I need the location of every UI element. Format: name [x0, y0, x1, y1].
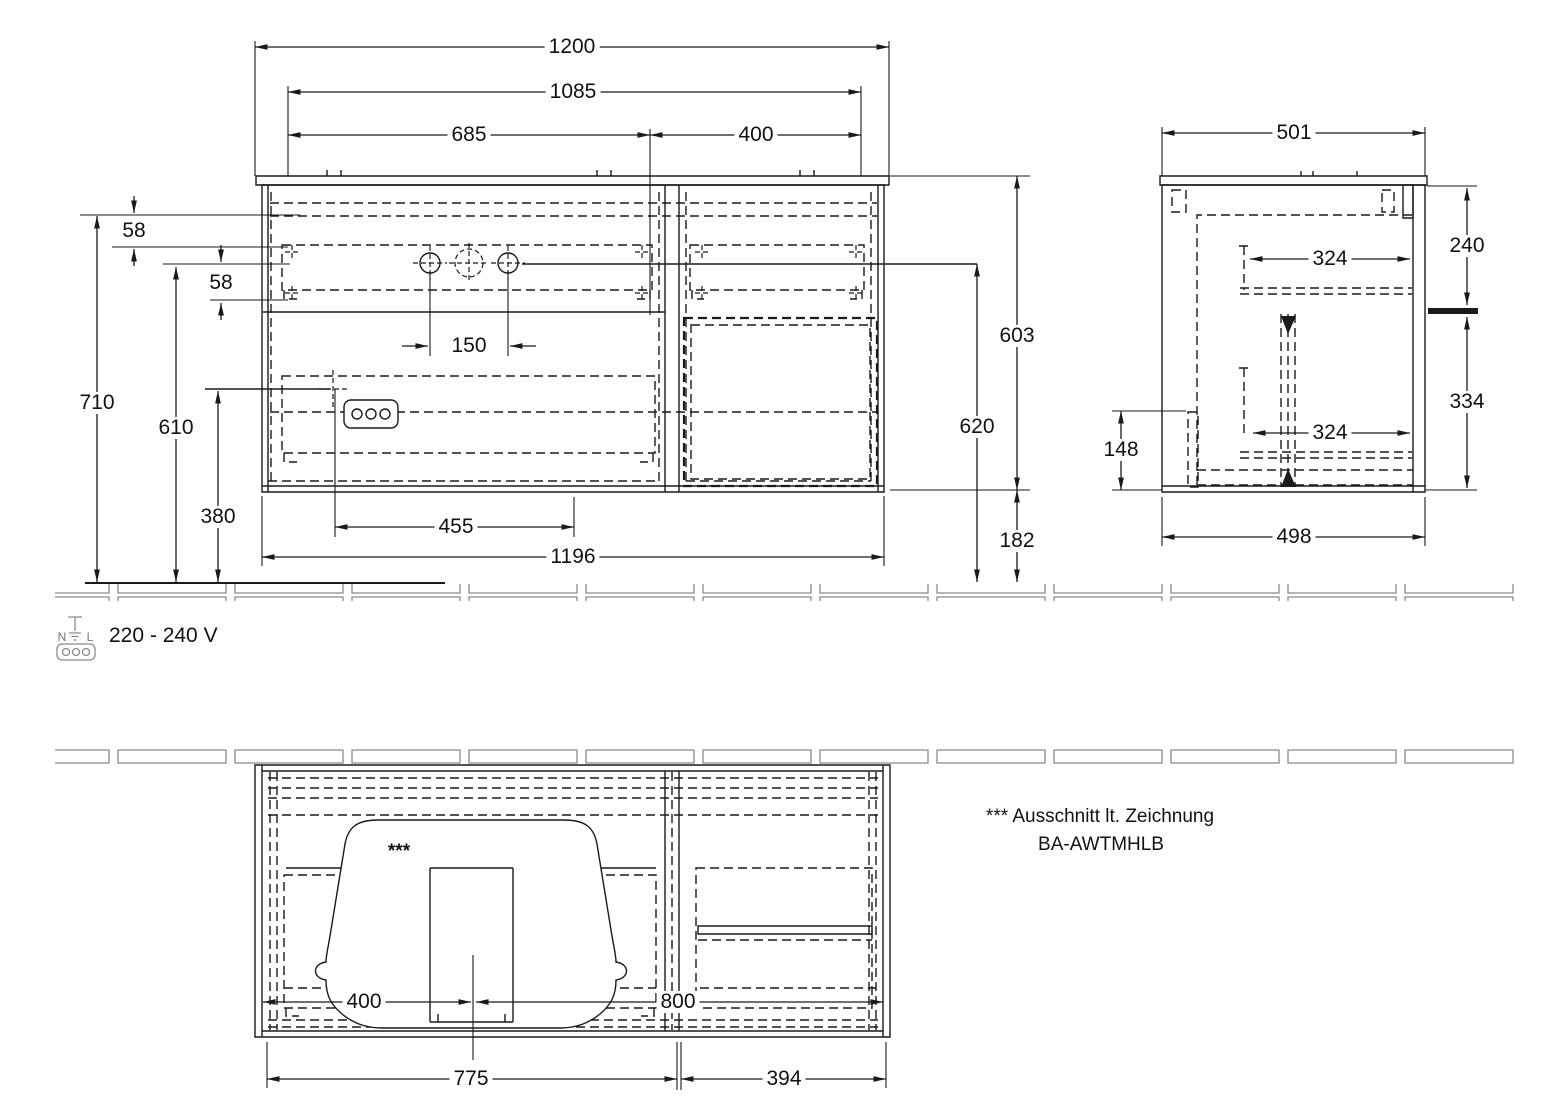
cutout-note-line2: BA-AWTMHLB: [1038, 834, 1164, 856]
technical-drawing-page: 1200 1085 685 400 58 58 710 610 380 150 …: [0, 0, 1558, 1119]
dim-side-upper-section: 240: [1445, 235, 1488, 257]
dim-front-basin-height: 620: [955, 416, 998, 438]
dim-plan-center-right: 800: [656, 991, 699, 1013]
wall-hatch: [55, 747, 1515, 764]
dim-front-height-mid: 610: [154, 417, 197, 439]
dim-side-lower-section: 334: [1445, 391, 1488, 413]
dim-plan-basin-center: 400: [342, 991, 385, 1013]
dim-front-width-total: 1200: [545, 36, 600, 58]
dim-front-left-section: 685: [447, 124, 490, 146]
front-view-linework: [205, 170, 977, 537]
cutout-marker: ***: [384, 842, 414, 862]
dim-side-lower-gap: 148: [1099, 439, 1142, 461]
dim-plan-right-width: 394: [762, 1068, 805, 1090]
dim-side-depth-bottom: 498: [1272, 526, 1315, 548]
dim-front-gap-second: 58: [205, 272, 236, 294]
dim-front-height-total: 710: [75, 392, 118, 414]
dim-front-body-height: 603: [995, 325, 1038, 347]
dim-front-height-socket: 380: [196, 506, 239, 528]
dim-front-socket-offset: 455: [434, 516, 477, 538]
dim-front-width-inner: 1085: [546, 81, 601, 103]
dim-side-drawer-upper: 324: [1308, 248, 1351, 270]
dim-plan-left-width: 775: [449, 1068, 492, 1090]
dim-front-body-width: 1196: [546, 546, 599, 568]
dim-front-hole-spacing: 150: [447, 335, 490, 357]
power-voltage-label: 220 - 240 V: [105, 625, 222, 647]
power-terminal-l: L: [87, 630, 94, 644]
cutout-note-line1: *** Ausschnitt lt. Zeichnung: [986, 806, 1214, 828]
dim-side-drawer-lower: 324: [1308, 422, 1351, 444]
drawing-canvas: [0, 0, 1558, 1119]
power-terminal-n: N: [58, 630, 67, 644]
dim-front-right-section: 400: [734, 124, 777, 146]
dim-front-bottom-clearance: 182: [995, 530, 1038, 552]
dim-front-gap-top: 58: [118, 220, 149, 242]
dim-side-depth-top: 501: [1272, 122, 1315, 144]
ground-hatch: [55, 583, 1515, 601]
